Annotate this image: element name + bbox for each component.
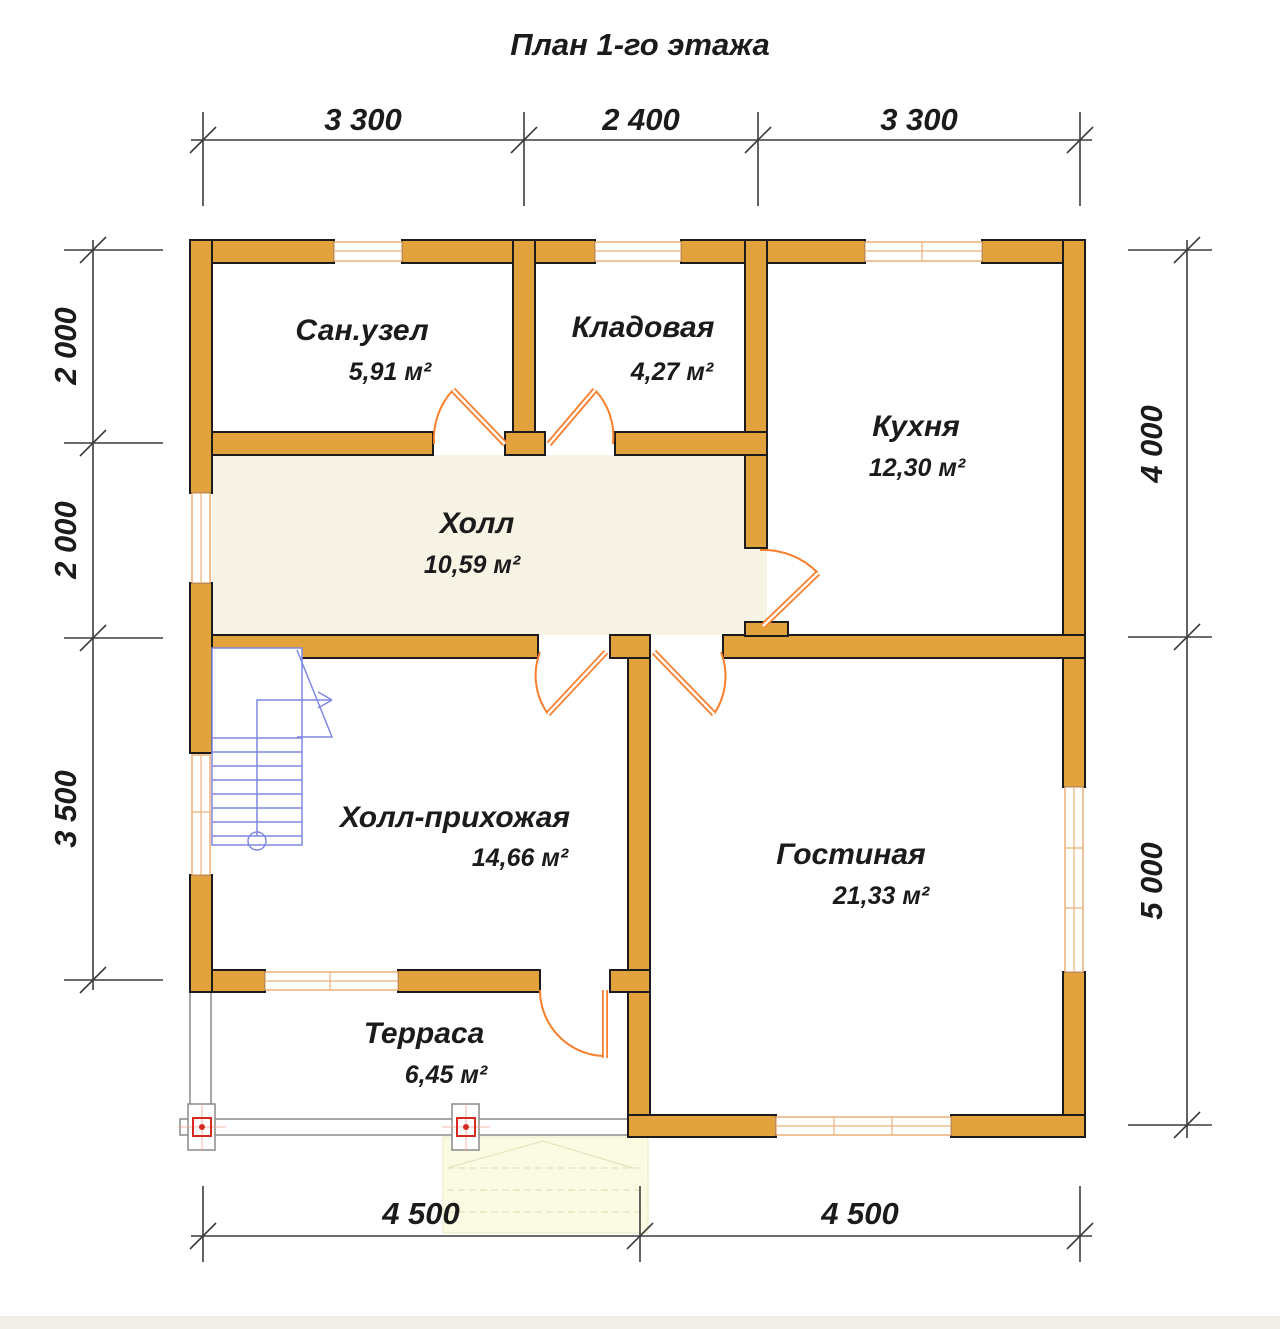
room-name-bathroom: Сан.узел <box>295 314 429 347</box>
room-name-hall-entry: Холл-прихожая <box>338 801 570 834</box>
floor-plan-canvas: 3 300 2 400 3 300 2 000 2 000 3 500 4 00… <box>0 0 1280 1329</box>
floor-plan-page: 3 300 2 400 3 300 2 000 2 000 3 500 4 00… <box>0 0 1280 1329</box>
room-area-hall-entry: 14,66 м² <box>472 844 569 872</box>
hall-floor-tint <box>212 455 745 635</box>
wall-hallway-living <box>628 635 650 1137</box>
window-left-2 <box>192 755 210 875</box>
dim-bottom-1: 4 500 <box>381 1196 460 1231</box>
dim-left-1: 2 000 <box>48 307 83 386</box>
room-area-storage: 4,27 м² <box>630 358 714 386</box>
room-area-terrace: 6,45 м² <box>405 1061 488 1089</box>
room-area-kitchen: 12,30 м² <box>869 454 966 482</box>
room-name-kitchen: Кухня <box>872 410 960 443</box>
room-area-hall: 10,59 м² <box>424 551 521 579</box>
window-top-2 <box>595 242 681 261</box>
dim-right-1: 4 000 <box>1134 405 1169 484</box>
wall-bath-storage <box>513 240 535 455</box>
window-terrace-wall <box>265 972 398 990</box>
room-name-storage: Кладовая <box>572 311 715 344</box>
window-top-1 <box>334 242 402 261</box>
window-living-bottom <box>776 1117 951 1135</box>
page-title: План 1-го этажа <box>510 27 769 62</box>
room-name-hall: Холл <box>438 507 515 540</box>
room-area-bathroom: 5,91 м² <box>349 358 432 386</box>
dim-top-2: 2 400 <box>601 102 680 137</box>
room-name-terrace: Терраса <box>364 1017 485 1050</box>
kitchen-doorway-tint <box>745 548 767 628</box>
window-top-3 <box>865 242 982 261</box>
dim-top-3: 3 300 <box>880 102 958 137</box>
wall-kitchen-left <box>745 240 767 548</box>
dim-top-1: 3 300 <box>324 102 402 137</box>
dim-left-2: 2 000 <box>48 501 83 580</box>
dim-right-2: 5 000 <box>1134 842 1169 920</box>
entrance-porch <box>443 1137 648 1233</box>
room-name-living: Гостиная <box>776 838 926 871</box>
room-area-living: 21,33 м² <box>832 882 930 910</box>
footer-strip <box>0 1316 1280 1329</box>
dim-left-3: 3 500 <box>48 770 83 848</box>
dim-bottom-2: 4 500 <box>820 1196 899 1231</box>
window-left-1 <box>192 493 210 583</box>
window-right-1 <box>1065 787 1083 972</box>
